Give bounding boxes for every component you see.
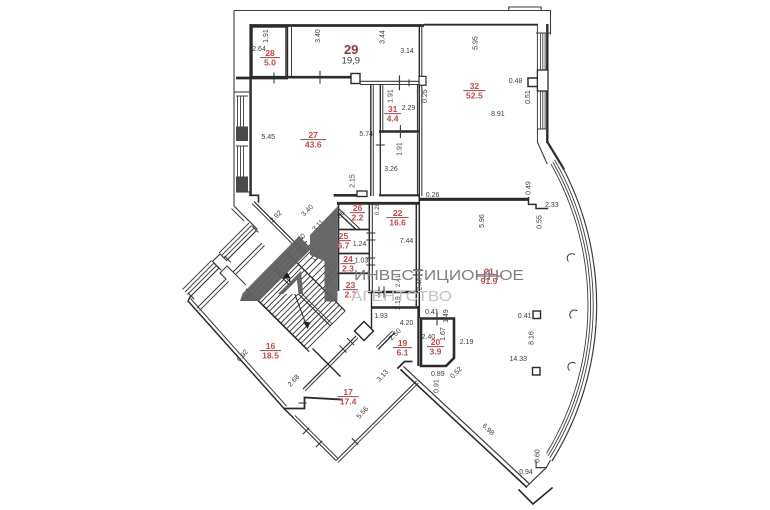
- svg-text:1.67: 1.67: [440, 327, 447, 341]
- svg-text:8.16: 8.16: [528, 331, 535, 345]
- svg-text:2.64: 2.64: [252, 46, 266, 53]
- svg-text:3.26: 3.26: [384, 166, 398, 173]
- svg-text:0.48: 0.48: [509, 78, 523, 85]
- svg-text:0.55: 0.55: [537, 215, 544, 229]
- svg-text:43.6: 43.6: [305, 139, 322, 149]
- svg-text:4.4: 4.4: [387, 113, 399, 123]
- svg-text:14.33: 14.33: [510, 356, 528, 363]
- svg-text:1.49: 1.49: [443, 309, 450, 323]
- svg-text:1.91: 1.91: [387, 89, 394, 103]
- svg-text:0.51: 0.51: [525, 90, 532, 104]
- svg-text:0.49: 0.49: [526, 181, 533, 195]
- svg-text:0.41: 0.41: [425, 309, 439, 316]
- svg-text:АГЕНТСТВО: АГЕНТСТВО: [351, 289, 452, 305]
- svg-text:0.41: 0.41: [518, 313, 532, 320]
- svg-text:0.60: 0.60: [535, 449, 542, 463]
- svg-text:16.6: 16.6: [389, 217, 406, 227]
- svg-text:2.29: 2.29: [402, 105, 416, 112]
- svg-text:0.91: 0.91: [433, 379, 440, 393]
- svg-text:18.5: 18.5: [262, 350, 279, 360]
- svg-text:0.28: 0.28: [374, 202, 381, 215]
- svg-text:7.44: 7.44: [400, 238, 414, 245]
- svg-text:3.44: 3.44: [380, 30, 387, 44]
- svg-text:5.45: 5.45: [261, 134, 275, 141]
- svg-text:19,9: 19,9: [342, 56, 361, 67]
- svg-text:6.1: 6.1: [397, 347, 409, 357]
- svg-text:2.40: 2.40: [421, 334, 435, 341]
- svg-text:6.7: 6.7: [338, 240, 350, 250]
- svg-text:1.24: 1.24: [353, 241, 367, 248]
- svg-text:17.4: 17.4: [340, 396, 357, 406]
- svg-text:3.14: 3.14: [400, 48, 414, 55]
- svg-text:3.40: 3.40: [315, 29, 322, 43]
- svg-text:5.0: 5.0: [264, 57, 276, 67]
- svg-text:0.89: 0.89: [431, 371, 445, 378]
- svg-text:1.91: 1.91: [263, 29, 270, 43]
- svg-text:3.9: 3.9: [430, 346, 442, 356]
- svg-text:0.94: 0.94: [519, 469, 533, 476]
- svg-text:5.96: 5.96: [479, 214, 486, 228]
- svg-text:2.19: 2.19: [460, 339, 474, 346]
- svg-text:8.91: 8.91: [491, 111, 505, 118]
- svg-text:5.95: 5.95: [472, 36, 479, 50]
- svg-text:0.26: 0.26: [426, 192, 440, 199]
- svg-text:52.5: 52.5: [466, 90, 483, 100]
- svg-text:2.33: 2.33: [545, 202, 559, 209]
- svg-text:4.20: 4.20: [400, 320, 414, 327]
- svg-text:0.25: 0.25: [422, 89, 429, 103]
- svg-text:2.3: 2.3: [342, 263, 354, 273]
- svg-text:2.2: 2.2: [352, 212, 364, 222]
- svg-text:1.91: 1.91: [397, 142, 404, 156]
- svg-text:1.93: 1.93: [374, 313, 388, 320]
- svg-text:ИНВЕСТИЦИОННОЕ: ИНВЕСТИЦИОННОЕ: [354, 268, 524, 284]
- svg-text:2.15: 2.15: [350, 174, 357, 188]
